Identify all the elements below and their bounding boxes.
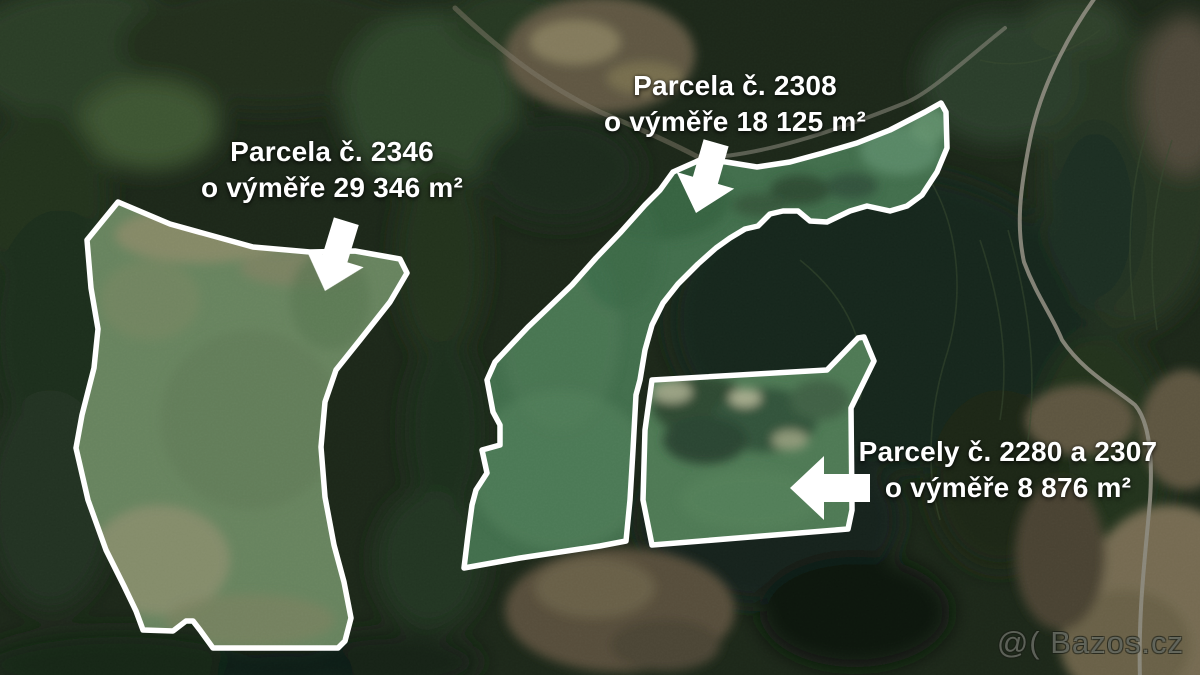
bazos-watermark: @( Bazos.cz (997, 625, 1184, 661)
parcels-2280-2307-area-text: o výměře 8 876 m² (859, 470, 1158, 506)
photo-grain (0, 0, 1200, 675)
parcel-2308-area-text: o výměře 18 125 m² (604, 104, 866, 140)
parcel-2346-title: Parcela č. 2346 (201, 134, 463, 170)
parcel-2308-title: Parcela č. 2308 (604, 68, 866, 104)
parcel-2308-label: Parcela č. 2308 o výměře 18 125 m² (604, 68, 866, 140)
satellite-map (0, 0, 1200, 675)
parcel-2346-label: Parcela č. 2346 o výměře 29 346 m² (201, 134, 463, 206)
parcel-2346-area-text: o výměře 29 346 m² (201, 170, 463, 206)
satellite-listing-image: Parcela č. 2346 o výměře 29 346 m² Parce… (0, 0, 1200, 675)
parcels-2280-2307-label: Parcely č. 2280 a 2307 o výměře 8 876 m² (859, 434, 1158, 506)
parcels-2280-2307-title: Parcely č. 2280 a 2307 (859, 434, 1158, 470)
